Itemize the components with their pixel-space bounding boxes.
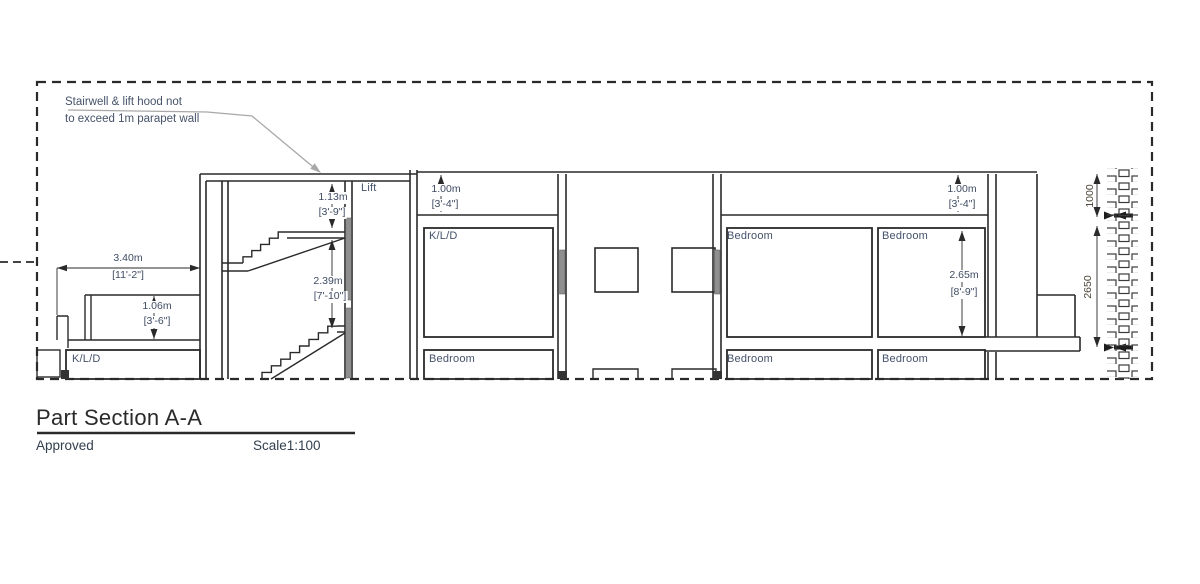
room-label-kld-ground-left: K/L/D [72, 353, 101, 365]
dim-100-right-imperial: [3'-4"] [948, 199, 977, 211]
dim-265-imperial: [8'-9"] [950, 287, 979, 299]
dim-239-metric: 2.39m [312, 276, 343, 288]
room-label-lift: Lift [361, 182, 376, 194]
room-label-bedroom-upper-right: Bedroom [882, 230, 928, 242]
room-label-bedroom-upper-mid: Bedroom [727, 230, 773, 242]
dim-100-left-imperial: [3'-4"] [431, 199, 460, 211]
dim-106-imperial: [3'-6"] [143, 316, 172, 328]
dim-113-metric: 1.13m [317, 192, 348, 204]
drawing-title: Part Section A-A [36, 405, 202, 431]
dim-113-imperial: [3'-9"] [318, 207, 347, 219]
status-label: Approved [36, 438, 94, 453]
annotation-line2: to exceed 1m parapet wall [65, 113, 199, 125]
section-linework [0, 0, 1200, 584]
scale-label: Scale1:100 [253, 438, 321, 453]
dim-2650-vertical: 2650 [1082, 275, 1094, 298]
dim-340-imperial: [11'-2"] [112, 270, 144, 282]
room-label-bedroom-ground-left: Bedroom [429, 353, 475, 365]
dim-106-metric: 1.06m [141, 301, 172, 313]
dim-100-right-metric: 1.00m [946, 184, 977, 196]
room-label-bedroom-ground-mid: Bedroom [727, 353, 773, 365]
dim-340-metric: 3.40m [113, 253, 142, 265]
dim-100-left-metric: 1.00m [430, 184, 461, 196]
dim-265-metric: 2.65m [948, 270, 979, 282]
drawing-sheet: Stairwell & lift hood not to exceed 1m p… [0, 0, 1200, 584]
dim-1000-vertical: 1000 [1084, 184, 1096, 207]
annotation-line1: Stairwell & lift hood not [65, 96, 182, 108]
dim-239-imperial: [7'-10"] [313, 291, 348, 303]
room-label-kld-upper: K/L/D [429, 230, 458, 242]
room-label-bedroom-ground-right: Bedroom [882, 353, 928, 365]
